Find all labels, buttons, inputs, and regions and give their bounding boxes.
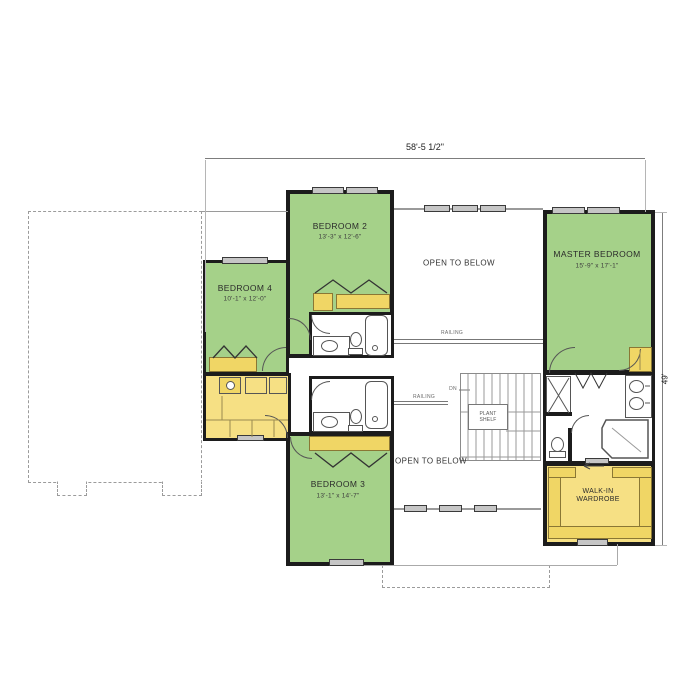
window-lower-open-3 bbox=[474, 505, 497, 512]
roof-notch-left bbox=[57, 481, 87, 496]
window-open-below-3 bbox=[480, 205, 506, 212]
closet-shelf-bedroom3 bbox=[309, 436, 390, 451]
master-toilet bbox=[551, 437, 564, 452]
sink-lower bbox=[321, 416, 338, 428]
bedroom4-size: 10'-1" x 12'-0" bbox=[224, 295, 267, 302]
sink-upper bbox=[321, 340, 338, 352]
window-master-1 bbox=[552, 207, 585, 214]
wardrobe-label-line2: WARDROBE bbox=[576, 496, 619, 504]
window-master-2 bbox=[587, 207, 620, 214]
closet-shelf-bedroom2-b bbox=[336, 294, 390, 309]
extension-line-right bbox=[645, 160, 646, 212]
window-open-below-2 bbox=[452, 205, 478, 212]
bedroom3-name: BEDROOM 3 bbox=[311, 480, 366, 490]
roofline-bottom bbox=[335, 565, 617, 566]
vanity-sink-2 bbox=[629, 397, 644, 410]
roofline-bottom-right bbox=[617, 544, 618, 565]
master-toilet-tank bbox=[549, 451, 566, 458]
toilet-lower bbox=[350, 409, 362, 424]
window-bedroom2-1 bbox=[312, 187, 344, 194]
window-bedroom2-2 bbox=[346, 187, 378, 194]
plant-shelf-label-2: SHELF bbox=[479, 417, 496, 423]
master-bedroom-name: MASTER BEDROOM bbox=[553, 250, 640, 260]
window-lower-open-1 bbox=[404, 505, 427, 512]
closet-shelf-bedroom4 bbox=[209, 357, 257, 372]
window-wardrobe bbox=[577, 539, 608, 546]
toilet-room-wall-v bbox=[568, 428, 572, 464]
wardrobe-shelf-bottom bbox=[548, 526, 652, 539]
bathtub-lower-drain bbox=[372, 416, 378, 422]
bedroom2-name: BEDROOM 2 bbox=[313, 222, 368, 232]
garage-roof-outline bbox=[28, 211, 202, 483]
railing-upper-line bbox=[394, 339, 543, 340]
wardrobe-shelf-top-left bbox=[548, 467, 576, 478]
porch-roof-outline bbox=[382, 565, 550, 588]
roof-notch-right bbox=[162, 481, 202, 496]
railing-lower-line2 bbox=[394, 404, 448, 405]
railing-upper-label: RAILING bbox=[441, 331, 463, 337]
dimension-right-label: 49' bbox=[660, 374, 669, 384]
extension-tick-right-bottom bbox=[655, 545, 667, 546]
stairs-dn-label: DN bbox=[449, 387, 457, 393]
window-open-below-1 bbox=[424, 205, 450, 212]
window-bedroom4 bbox=[222, 257, 268, 264]
pocket-door-wardrobe bbox=[585, 458, 609, 464]
toilet-room-wall-h bbox=[543, 412, 572, 416]
laundry-sink bbox=[226, 381, 235, 390]
bathtub-lower bbox=[365, 381, 388, 429]
linen-closet bbox=[546, 376, 571, 415]
washer bbox=[245, 377, 267, 394]
roofline-top bbox=[200, 211, 288, 212]
plant-shelf-box: PLANT SHELF bbox=[468, 404, 508, 430]
window-bedroom3 bbox=[329, 559, 364, 566]
dimension-line-top bbox=[205, 158, 645, 159]
wardrobe-shelf-top-right bbox=[612, 467, 652, 478]
toilet-tank-lower bbox=[348, 425, 363, 432]
open-to-below-upper-label: OPEN TO BELOW bbox=[423, 258, 495, 267]
railing-lower-label: RAILING bbox=[413, 395, 435, 401]
floor-plan: PLANT SHELF bbox=[0, 0, 700, 700]
extension-tick-right-top bbox=[655, 212, 667, 213]
railing-lower-line bbox=[394, 401, 448, 402]
extension-line-left bbox=[205, 160, 206, 332]
toilet-upper bbox=[350, 332, 362, 347]
dryer bbox=[269, 377, 287, 394]
vanity-sink-1 bbox=[629, 380, 644, 393]
bedroom4-name: BEDROOM 4 bbox=[218, 284, 273, 294]
railing-upper-line2 bbox=[394, 343, 543, 344]
master-bedroom-size: 15'-9" x 17'-1" bbox=[576, 262, 619, 269]
window-laundry bbox=[237, 435, 264, 441]
open-to-below-lower-label: OPEN TO BELOW bbox=[395, 456, 467, 465]
dimension-top-label: 58'-5 1/2" bbox=[406, 142, 444, 152]
toilet-tank-upper bbox=[348, 348, 363, 355]
window-lower-open-2 bbox=[439, 505, 462, 512]
wardrobe-label-line1: WALK-IN bbox=[576, 488, 619, 496]
bedroom2-size: 13'-3" x 12'-6" bbox=[319, 233, 362, 240]
closet-shelf-bedroom2-a bbox=[313, 293, 333, 311]
bedroom3-size: 13'-1" x 14'-7" bbox=[317, 492, 360, 499]
bathtub-upper-drain bbox=[372, 345, 378, 351]
wardrobe-label: WALK-IN WARDROBE bbox=[576, 488, 619, 504]
